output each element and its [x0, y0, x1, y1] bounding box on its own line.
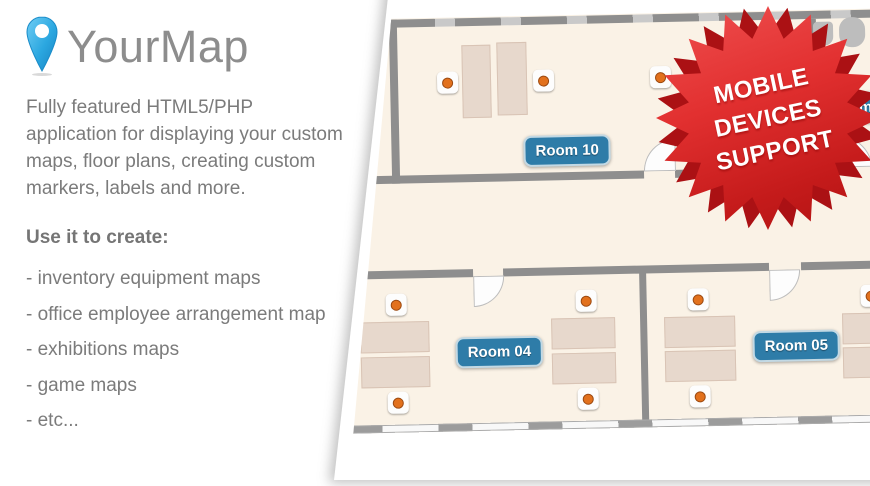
desk — [496, 42, 528, 116]
marker-dot — [393, 397, 404, 408]
desk — [842, 312, 870, 344]
map-marker[interactable] — [533, 69, 554, 91]
use-cases-heading: Use it to create: — [26, 227, 346, 249]
desk — [360, 321, 430, 353]
marker-dot — [695, 391, 706, 402]
marker-dot — [581, 295, 592, 306]
map-marker[interactable] — [385, 293, 406, 315]
mobile-support-starburst: MOBILE DEVICES SUPPORT — [656, 6, 870, 230]
map-marker[interactable] — [689, 385, 710, 407]
logo: YourMap — [26, 14, 346, 78]
intro-text: Fully featured HTML5/PHP application for… — [26, 94, 344, 202]
marker-dot — [583, 393, 594, 404]
room-label-room10[interactable]: Room 10 — [523, 134, 611, 167]
use-case-item: - game maps — [26, 368, 346, 404]
map-marker[interactable] — [437, 71, 458, 93]
desk — [461, 45, 492, 119]
brand-title: YourMap — [67, 24, 249, 69]
desk — [361, 356, 431, 388]
room-label-room04[interactable]: Room 04 — [455, 336, 543, 369]
map-marker[interactable] — [578, 387, 599, 409]
use-case-item: - inventory equipment maps — [26, 261, 346, 297]
marker-dot — [391, 299, 402, 310]
wall-middle-c — [801, 260, 870, 270]
use-case-item: - etc... — [26, 403, 346, 439]
pin-shadow — [32, 73, 52, 76]
room-label-room05[interactable]: Room 05 — [752, 329, 840, 362]
map-marker[interactable] — [860, 285, 870, 307]
desk — [551, 317, 616, 349]
desk — [664, 316, 736, 348]
map-marker[interactable] — [388, 391, 409, 413]
desk — [552, 352, 617, 384]
marker-dot — [693, 294, 704, 305]
marker-dot — [866, 290, 870, 301]
desk — [665, 350, 737, 382]
info-panel: YourMap Fully featured HTML5/PHP applica… — [26, 14, 346, 439]
starburst-text: MOBILE DEVICES SUPPORT — [635, 0, 870, 251]
marker-dot — [538, 75, 549, 86]
use-cases-list: - inventory equipment maps - office empl… — [26, 261, 346, 439]
use-case-item: - office employee arrangement map — [26, 297, 346, 333]
use-case-item: - exhibitions maps — [26, 332, 346, 368]
desk — [843, 346, 870, 378]
marker-dot — [442, 77, 453, 88]
map-marker[interactable] — [575, 290, 596, 312]
map-marker[interactable] — [687, 288, 708, 310]
map-pin-icon — [26, 15, 58, 77]
